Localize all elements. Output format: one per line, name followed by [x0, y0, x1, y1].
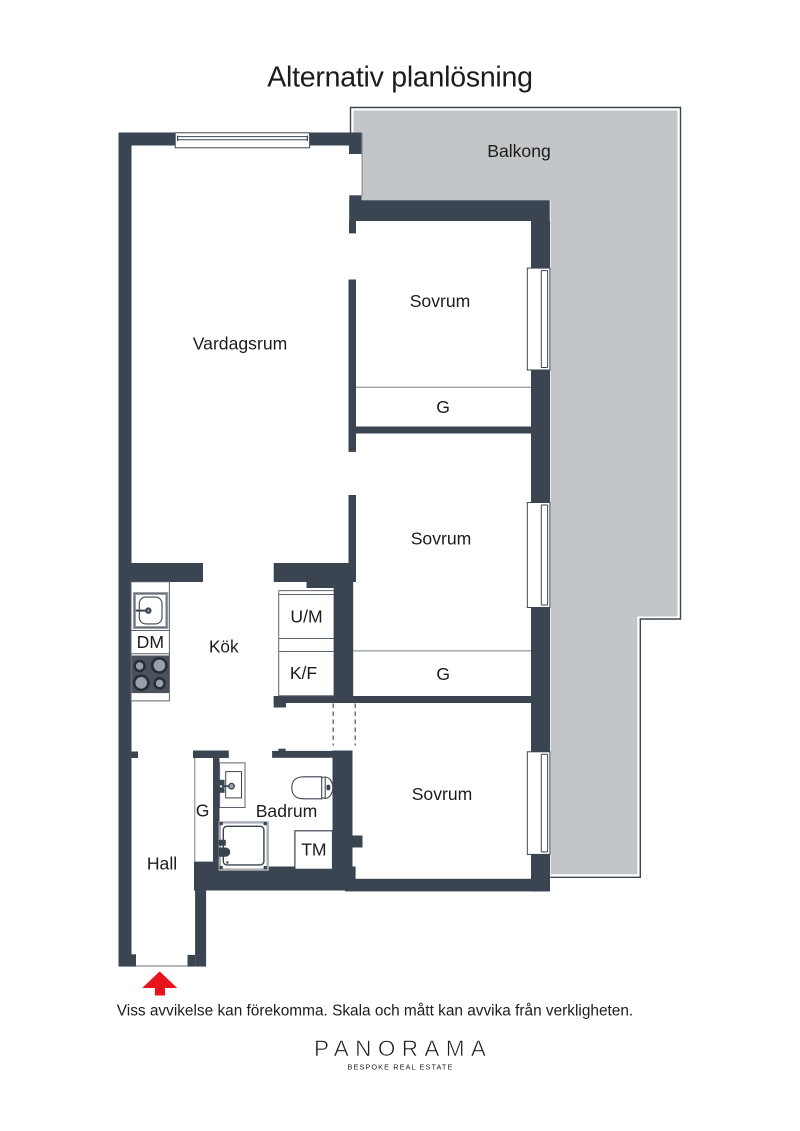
svg-text:Vardagsrum: Vardagsrum: [193, 334, 288, 354]
svg-text:Sovrum: Sovrum: [412, 784, 473, 804]
svg-text:Viss avvikelse kan förekomma.: Viss avvikelse kan förekomma. Skala och …: [117, 1002, 633, 1019]
svg-text:Sovrum: Sovrum: [411, 529, 472, 549]
svg-text:DM: DM: [137, 632, 164, 652]
svg-text:Balkong: Balkong: [487, 141, 551, 161]
svg-text:U/M: U/M: [290, 607, 322, 627]
svg-text:Alternativ planlösning: Alternativ planlösning: [267, 62, 532, 94]
svg-text:G: G: [436, 664, 450, 684]
svg-text:PANORAMA: PANORAMA: [314, 1036, 492, 1061]
svg-text:G: G: [436, 397, 450, 417]
svg-text:Kök: Kök: [209, 636, 239, 656]
svg-text:TM: TM: [301, 839, 326, 859]
svg-text:BESPOKE REAL ESTATE: BESPOKE REAL ESTATE: [348, 1063, 454, 1072]
svg-text:K/F: K/F: [290, 663, 318, 683]
svg-text:Sovrum: Sovrum: [410, 291, 471, 311]
svg-text:Badrum: Badrum: [256, 801, 318, 821]
svg-text:Hall: Hall: [147, 854, 177, 874]
svg-text:G: G: [196, 800, 210, 820]
